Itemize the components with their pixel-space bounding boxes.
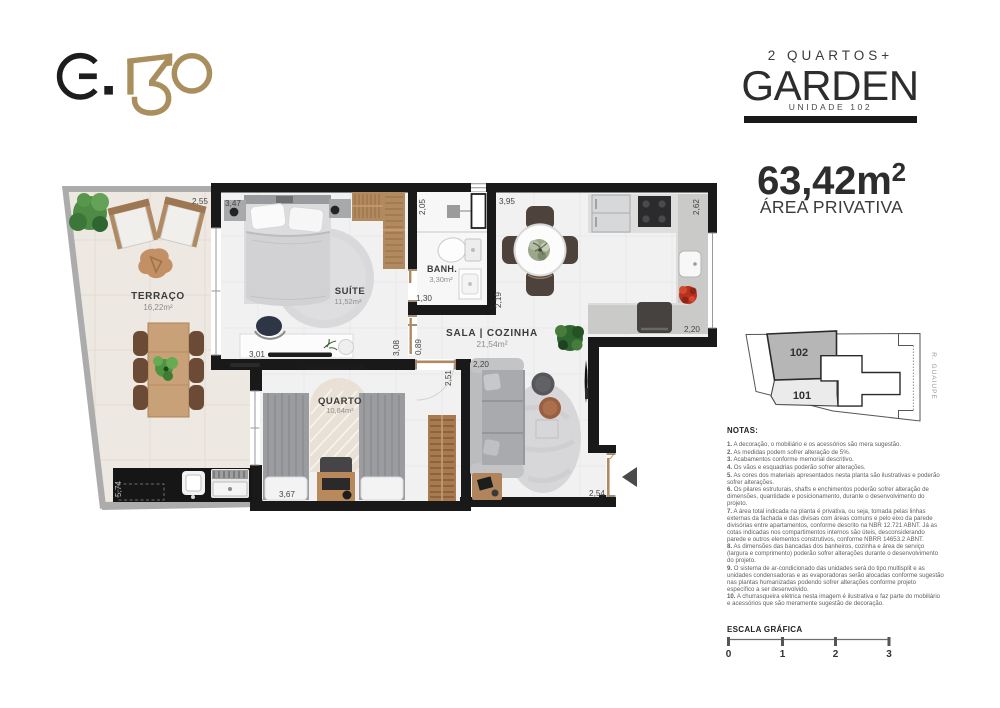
svg-text:2,20: 2,20 xyxy=(684,325,700,334)
svg-text:1,30: 1,30 xyxy=(416,294,432,303)
svg-text:16,22m²: 16,22m² xyxy=(143,303,173,312)
svg-text:2,51: 2,51 xyxy=(444,370,453,386)
svg-text:10,84m²: 10,84m² xyxy=(326,406,354,415)
svg-text:1: 1 xyxy=(780,649,786,660)
svg-text:2,54: 2,54 xyxy=(589,489,605,498)
svg-text:0: 0 xyxy=(726,649,732,660)
svg-text:0,89: 0,89 xyxy=(414,339,423,355)
svg-text:3,95: 3,95 xyxy=(499,197,515,206)
svg-text:2,20: 2,20 xyxy=(473,360,489,369)
svg-text:2: 2 xyxy=(833,649,839,660)
svg-text:BANH.: BANH. xyxy=(427,264,457,274)
svg-text:3,30m²: 3,30m² xyxy=(429,275,453,284)
svg-text:102: 102 xyxy=(790,347,808,359)
svg-text:5,74: 5,74 xyxy=(114,481,123,497)
svg-text:3,47: 3,47 xyxy=(225,199,241,208)
svg-text:SALA | COZINHA: SALA | COZINHA xyxy=(446,328,538,339)
svg-text:3,08: 3,08 xyxy=(392,340,401,356)
svg-text:2,55: 2,55 xyxy=(192,197,208,206)
svg-text:2,05: 2,05 xyxy=(418,199,427,215)
svg-text:3,01: 3,01 xyxy=(249,350,265,359)
svg-text:11,52m²: 11,52m² xyxy=(335,297,362,306)
svg-text:3,67: 3,67 xyxy=(279,490,295,499)
svg-text:TERRAÇO: TERRAÇO xyxy=(131,291,185,302)
svg-text:3: 3 xyxy=(886,649,892,660)
svg-text:R. GUAIUPE: R. GUAIUPE xyxy=(930,352,937,400)
svg-text:101: 101 xyxy=(793,390,811,402)
svg-text:2,62: 2,62 xyxy=(692,199,701,215)
svg-text:2,19: 2,19 xyxy=(494,292,503,308)
svg-text:SUÍTE: SUÍTE xyxy=(335,286,365,297)
svg-text:21,54m²: 21,54m² xyxy=(476,339,507,349)
